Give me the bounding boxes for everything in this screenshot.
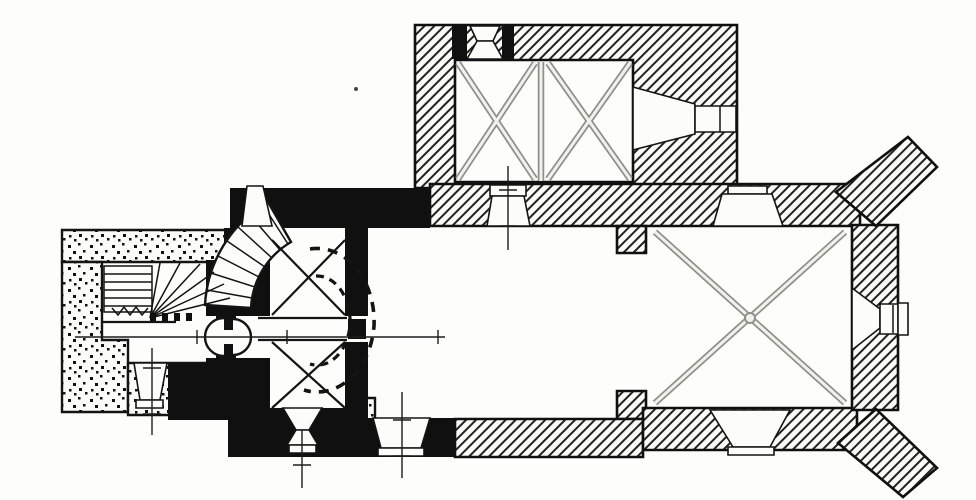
porch-stair-winder-4: [150, 272, 214, 318]
porch-threshold-tooth-3: [174, 313, 180, 321]
chancel-arch-pier-south: [617, 391, 646, 419]
chancel-east-window-frame: [898, 303, 908, 335]
nave-south-door-sill: [378, 448, 424, 456]
porch-door-sill: [136, 400, 163, 408]
chancel-arch-pier-north: [617, 226, 646, 253]
porch-threshold-tooth-2: [162, 313, 168, 321]
chancel-north-window-outer: [728, 186, 767, 194]
apse-foundation-inner-dashed: [310, 276, 350, 365]
chancel-vault-boss: [745, 313, 755, 323]
porch-stair-box: [104, 266, 152, 312]
porch-threshold-tooth-1: [150, 313, 156, 321]
porch-stair-breakline: [112, 307, 148, 315]
porch-threshold-tooth-4: [186, 313, 192, 321]
chapel-window-jamb-right: [502, 26, 514, 59]
church-floor-plan-page: [0, 0, 976, 500]
church-floor-plan-drawing: [0, 0, 976, 500]
scan-speck: [354, 87, 358, 91]
chapel-east-window-channel: [695, 106, 736, 132]
porch-wall-north: [62, 230, 232, 262]
tower-wall-east-lower: [345, 342, 368, 408]
nave-south-wall: [455, 419, 643, 457]
chapel-window-jamb-left: [452, 26, 467, 59]
chancel-north-window-splay: [713, 194, 783, 226]
chancel-south-door-sill: [728, 447, 774, 455]
